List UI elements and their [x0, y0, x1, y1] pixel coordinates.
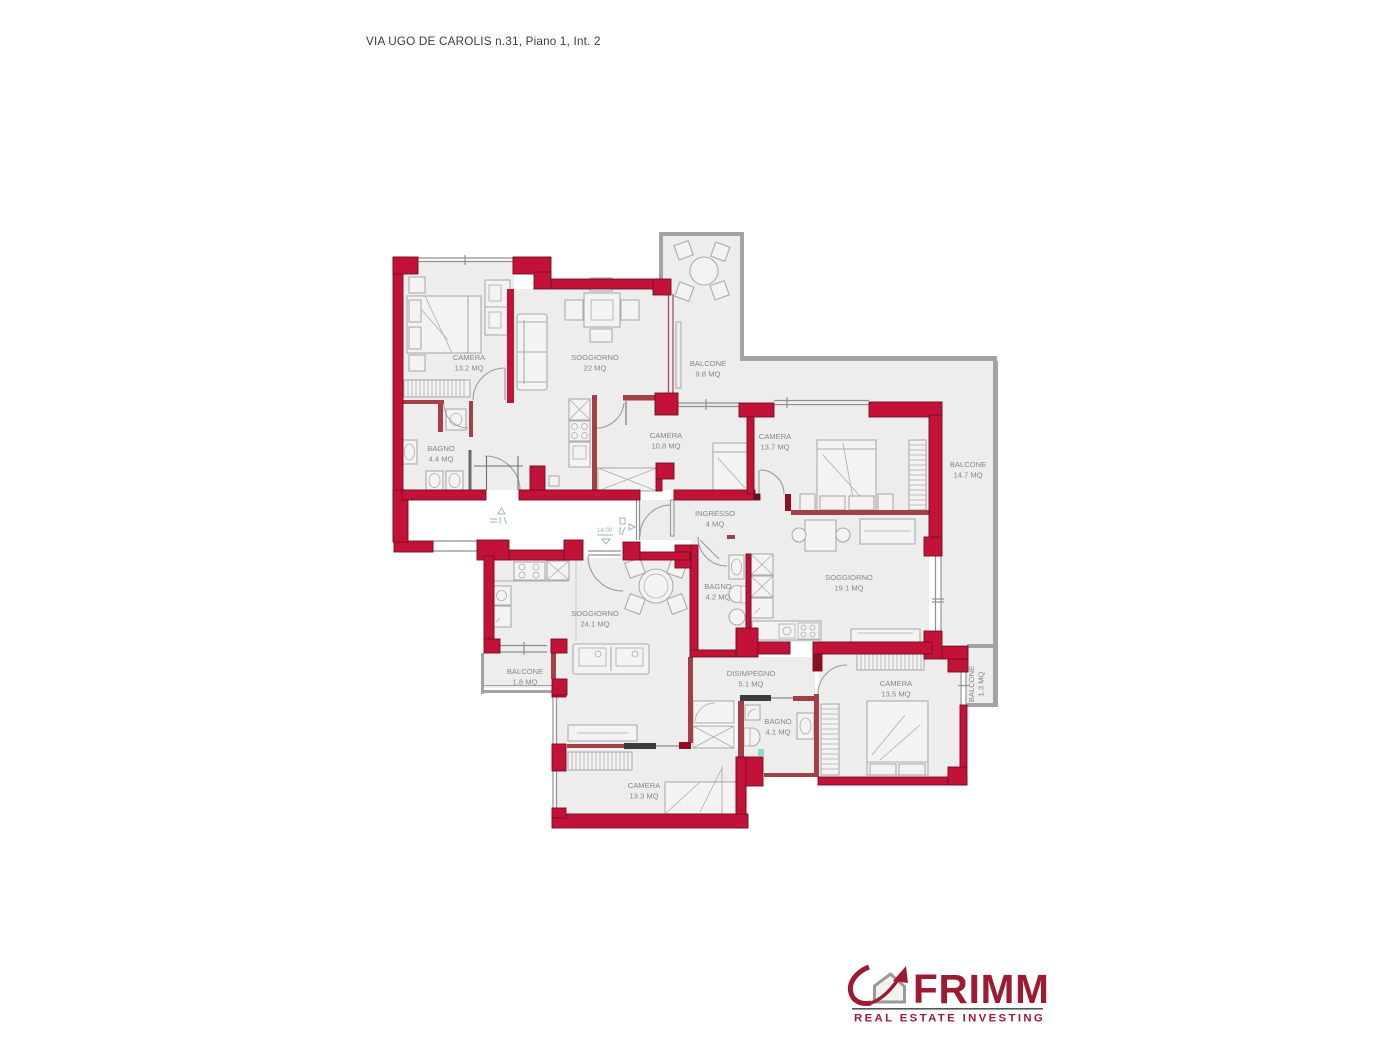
svg-text:BAGNO: BAGNO — [764, 717, 792, 726]
svg-text:13.5 MQ: 13.5 MQ — [881, 690, 910, 699]
svg-text:4 MQ: 4 MQ — [706, 520, 725, 529]
svg-text:13.7 MQ: 13.7 MQ — [760, 443, 789, 452]
svg-text:22 MQ: 22 MQ — [584, 364, 607, 373]
svg-text:FRIMM: FRIMM — [913, 966, 1050, 1012]
svg-text:SOGGIORNO: SOGGIORNO — [825, 573, 873, 582]
svg-text:5.1 MQ: 5.1 MQ — [739, 680, 764, 689]
svg-text:CAMERA: CAMERA — [759, 432, 792, 441]
svg-text:4.4 MQ: 4.4 MQ — [429, 455, 454, 464]
svg-text:9.8 MQ: 9.8 MQ — [696, 370, 721, 379]
svg-text:1.3 MQ: 1.3 MQ — [977, 671, 986, 696]
svg-text:CAMERA: CAMERA — [880, 679, 913, 688]
svg-text:BALCONE: BALCONE — [950, 460, 986, 469]
svg-text:13.3 MQ: 13.3 MQ — [629, 792, 658, 801]
svg-text:24.1 MQ: 24.1 MQ — [580, 620, 609, 629]
svg-text:CAMERA: CAMERA — [650, 431, 683, 440]
svg-text:BALCONE: BALCONE — [507, 667, 543, 676]
svg-text:SOGGIORNO: SOGGIORNO — [571, 353, 619, 362]
svg-text:BALCONE: BALCONE — [967, 666, 976, 702]
svg-text:4.1 MQ: 4.1 MQ — [766, 728, 791, 737]
svg-text:BALCONE: BALCONE — [690, 359, 726, 368]
svg-text:14.08: 14.08 — [597, 528, 613, 534]
svg-text:BAGNO: BAGNO — [704, 582, 732, 591]
svg-text:1.8 MQ: 1.8 MQ — [513, 678, 538, 687]
svg-text:13.2 MQ: 13.2 MQ — [454, 364, 483, 373]
svg-text:CAMERA: CAMERA — [453, 353, 486, 362]
svg-text:10.8 MQ: 10.8 MQ — [651, 442, 680, 451]
svg-text:SOGGIORNO: SOGGIORNO — [571, 609, 619, 618]
svg-text:REAL ESTATE INVESTING: REAL ESTATE INVESTING — [854, 1013, 1045, 1025]
svg-text:INGRESSO: INGRESSO — [695, 509, 735, 518]
svg-text:DISIMPEGNO: DISIMPEGNO — [727, 669, 776, 678]
svg-text:BAGNO: BAGNO — [427, 444, 455, 453]
svg-text:CAMERA: CAMERA — [628, 781, 661, 790]
svg-text:4.2 MQ: 4.2 MQ — [706, 593, 731, 602]
svg-text:19.1 MQ: 19.1 MQ — [834, 584, 863, 593]
svg-text:14.7 MQ: 14.7 MQ — [953, 471, 982, 480]
